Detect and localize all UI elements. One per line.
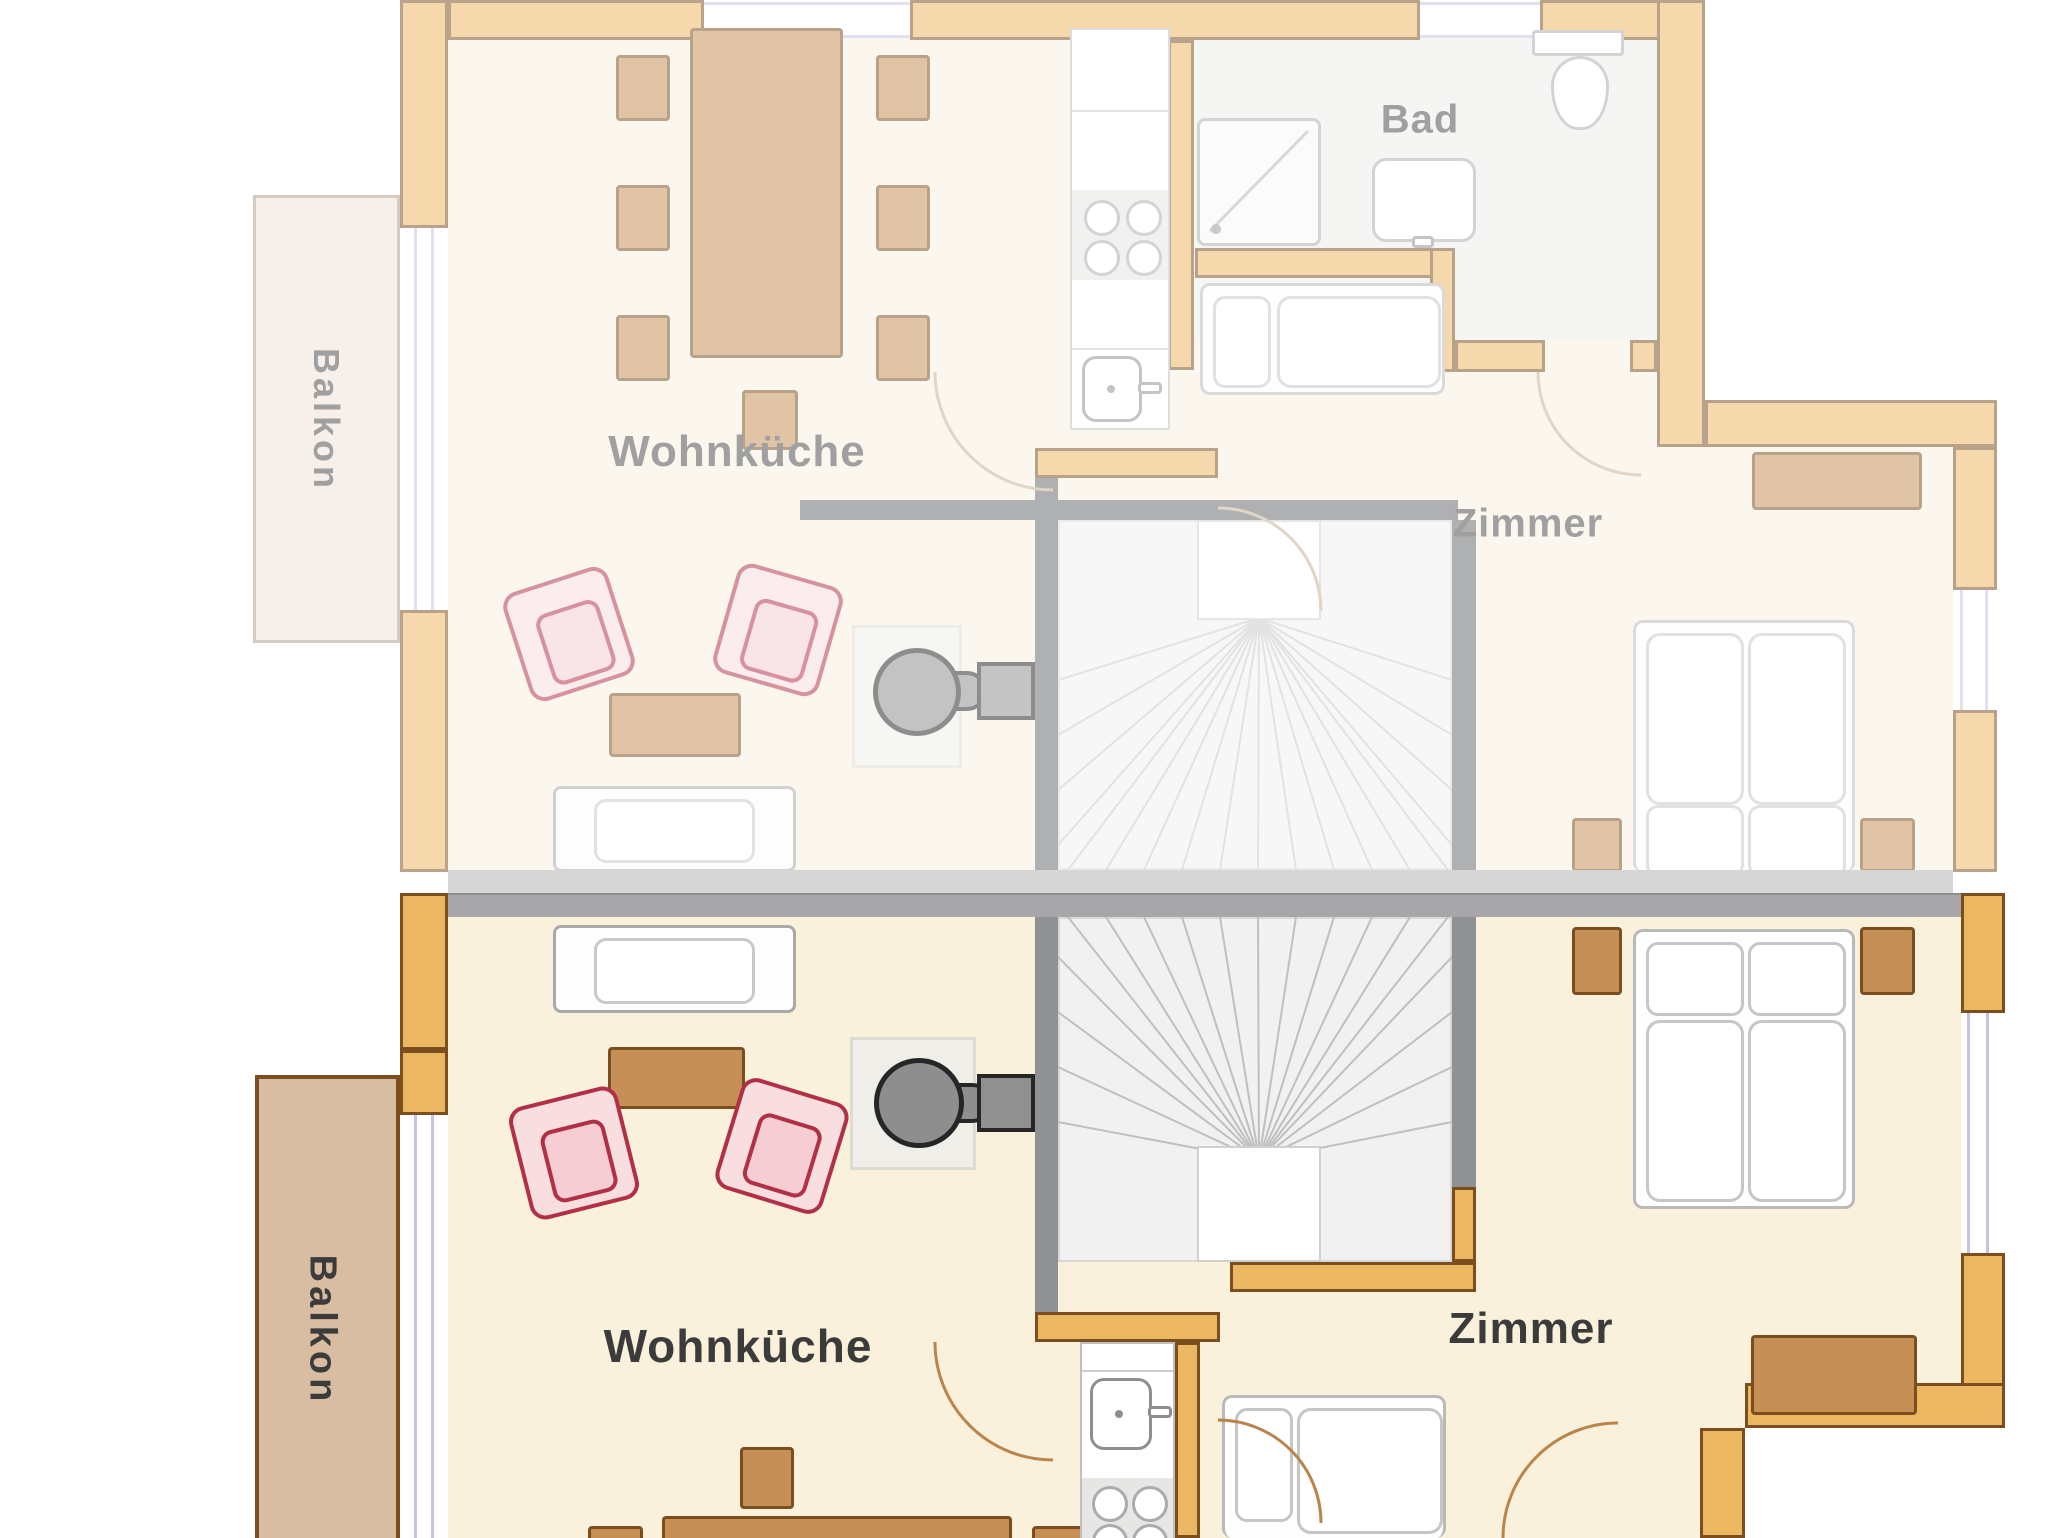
lower-coffee-table bbox=[608, 1047, 745, 1109]
lower-cooktop-icon bbox=[1082, 1478, 1173, 1538]
lower-balcony-label: Balkon bbox=[301, 1255, 344, 1406]
lower-kitchen-counter bbox=[1080, 1342, 1175, 1538]
floorplan-canvas: Balkon bbox=[0, 0, 2048, 1538]
lower-stair-wall-right bbox=[1452, 917, 1476, 1187]
lower-room-label: Zimmer bbox=[1449, 1304, 1614, 1354]
lower-nightstand bbox=[1572, 927, 1622, 995]
lower-stair-wall-left bbox=[1035, 917, 1058, 1312]
lower-kitchen-tap-icon bbox=[1148, 1406, 1172, 1418]
lower-window-right bbox=[1967, 1013, 1989, 1253]
lower-wall-right-1 bbox=[1961, 893, 2005, 1013]
lower-wall-stair-bottom bbox=[1230, 1262, 1476, 1292]
lower-dresser bbox=[1751, 1335, 1917, 1415]
lower-chair bbox=[1032, 1526, 1087, 1538]
lower-wall-right-step-v bbox=[1700, 1428, 1745, 1538]
floor-lower-level[interactable]: Balkon bbox=[0, 0, 2048, 1538]
lower-dining-table bbox=[662, 1516, 1012, 1538]
lower-wall-stair-right bbox=[1452, 1187, 1476, 1262]
lower-wood-stove-icon bbox=[874, 1058, 964, 1148]
lower-chair bbox=[588, 1526, 643, 1538]
lower-nightstand bbox=[1860, 927, 1915, 995]
lower-sofa bbox=[553, 925, 796, 1013]
lower-stove-flue-box bbox=[977, 1074, 1035, 1132]
lower-kitchen-sink-icon bbox=[1090, 1378, 1152, 1450]
lower-double-bed bbox=[1633, 929, 1855, 1209]
lower-wall-balcony-stub bbox=[400, 1050, 448, 1115]
lower-window-balcony-door bbox=[414, 1115, 434, 1538]
lower-wall-kitchen-stub bbox=[1035, 1312, 1220, 1342]
lower-living-label: Wohnküche bbox=[604, 1319, 873, 1373]
lower-chair bbox=[740, 1447, 794, 1509]
lower-wall-left bbox=[400, 893, 448, 1050]
lower-wall-kitchen-v bbox=[1175, 1342, 1200, 1538]
lower-wall-right-2 bbox=[1961, 1253, 2005, 1386]
lower-single-bed bbox=[1222, 1395, 1446, 1538]
lower-outside-mask bbox=[1745, 1428, 1961, 1538]
lower-stair-landing bbox=[1197, 1146, 1321, 1262]
